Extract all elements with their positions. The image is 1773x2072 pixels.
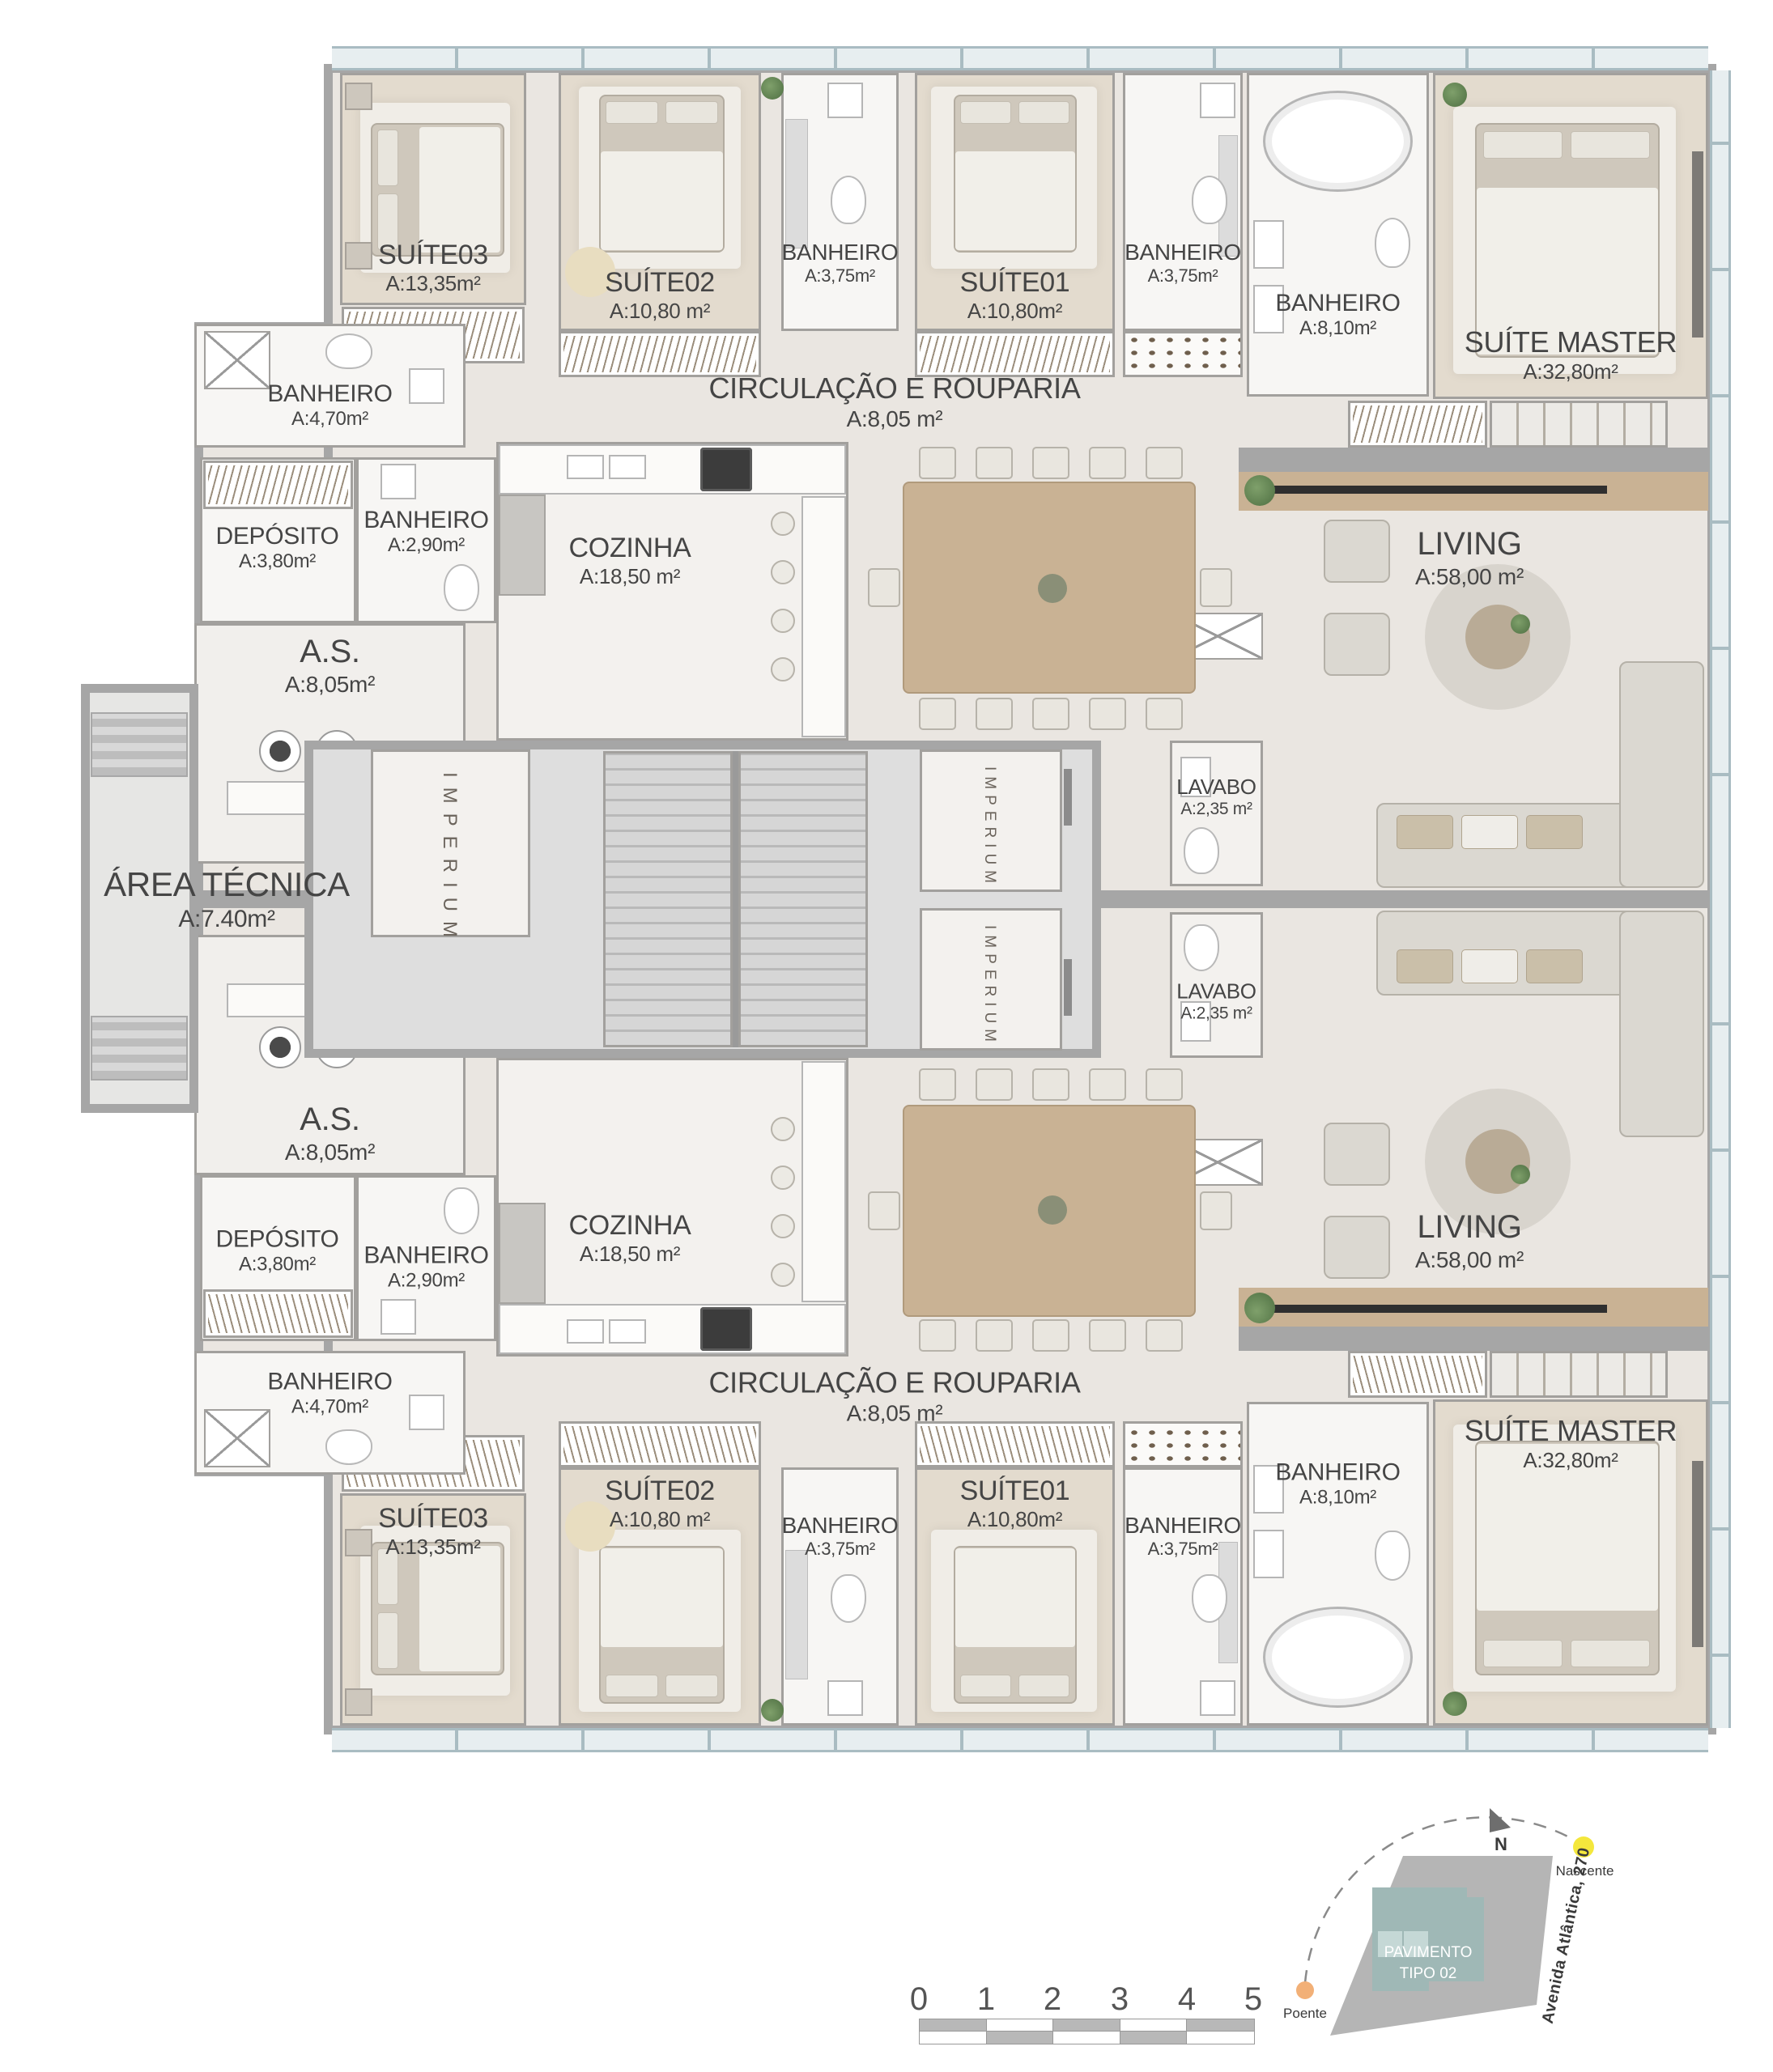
building-label-line2: TIPO 02 (1371, 1964, 1485, 1985)
scale-bar-cell (1187, 2032, 1254, 2044)
building-footprint-label: PAVIMENTO TIPO 02 (1371, 1942, 1485, 1984)
scale-bar-cell (1053, 2019, 1120, 2032)
scale-tick: 5 (1235, 1981, 1271, 2018)
scale-bar-cell (987, 2019, 1054, 2032)
scale-tick: 3 (1102, 1981, 1137, 2018)
scale-bar-cell (987, 2032, 1054, 2044)
scale-bar-cell (1053, 2032, 1120, 2044)
scale-bar: 0 1 2 3 4 5 (919, 1981, 1257, 2043)
scale-bar-cell (1120, 2032, 1188, 2044)
scale-tick: 4 (1169, 1981, 1205, 2018)
scale-bar-cell (920, 2032, 987, 2044)
scale-bar-cell (1187, 2019, 1254, 2032)
building-label-line1: PAVIMENTO (1371, 1942, 1485, 1964)
scale-bar-cell (920, 2019, 987, 2032)
poente-label: Poente (1265, 2006, 1346, 2022)
scale-bar-row (919, 2031, 1255, 2044)
site-legend-graphic (0, 0, 1773, 2072)
north-label: N (1495, 1834, 1519, 1855)
scale-tick: 2 (1035, 1981, 1070, 2018)
scale-tick: 1 (968, 1981, 1004, 2018)
scale-tick: 0 (901, 1981, 937, 2018)
poente-sun-icon (1296, 1981, 1314, 1999)
north-arrow-icon (1490, 1808, 1511, 1832)
scale-bar-cell (1120, 2019, 1188, 2032)
